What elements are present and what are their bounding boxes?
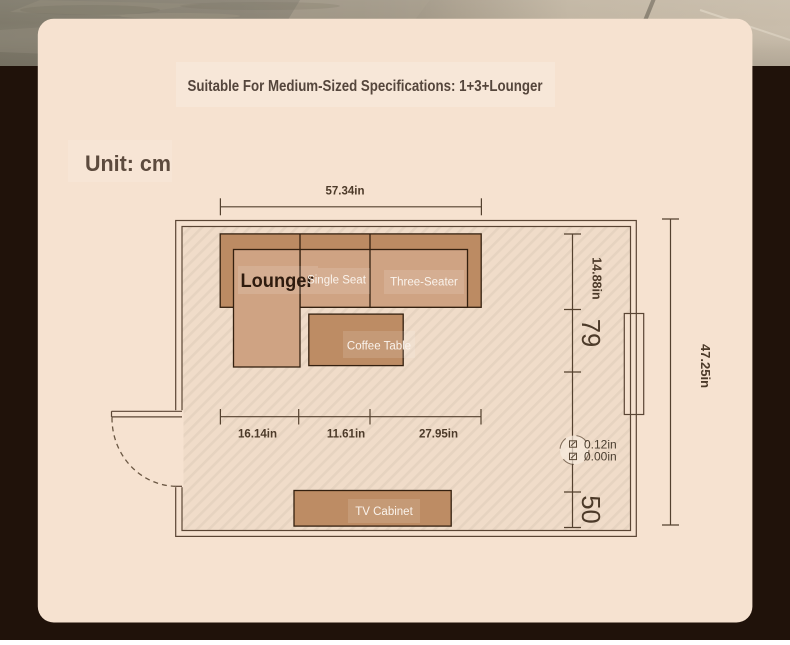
svg-text:0.00in: 0.00in (584, 450, 617, 464)
svg-text:Suitable For Medium-Sized Spec: Suitable For Medium-Sized Specifications… (188, 78, 543, 95)
svg-text:Single Seat: Single Seat (307, 275, 367, 287)
svg-text:47.25in: 47.25in (698, 344, 713, 388)
svg-text:14.88in: 14.88in (590, 257, 604, 299)
svg-text:Coffee Table: Coffee Table (347, 341, 411, 353)
svg-text:TV Cabinet: TV Cabinet (355, 506, 413, 518)
svg-text:27.95in: 27.95in (419, 429, 458, 441)
svg-text:16.14in: 16.14in (238, 429, 277, 441)
svg-text:57.34in: 57.34in (326, 186, 365, 198)
svg-text:Three-Seater: Three-Seater (390, 277, 458, 289)
svg-text:11.61in: 11.61in (327, 429, 365, 441)
svg-text:Lounger: Lounger (241, 271, 315, 292)
svg-text:79: 79 (576, 319, 604, 347)
svg-text:Unit: cm: Unit: cm (85, 151, 171, 176)
svg-text:50: 50 (576, 495, 604, 523)
